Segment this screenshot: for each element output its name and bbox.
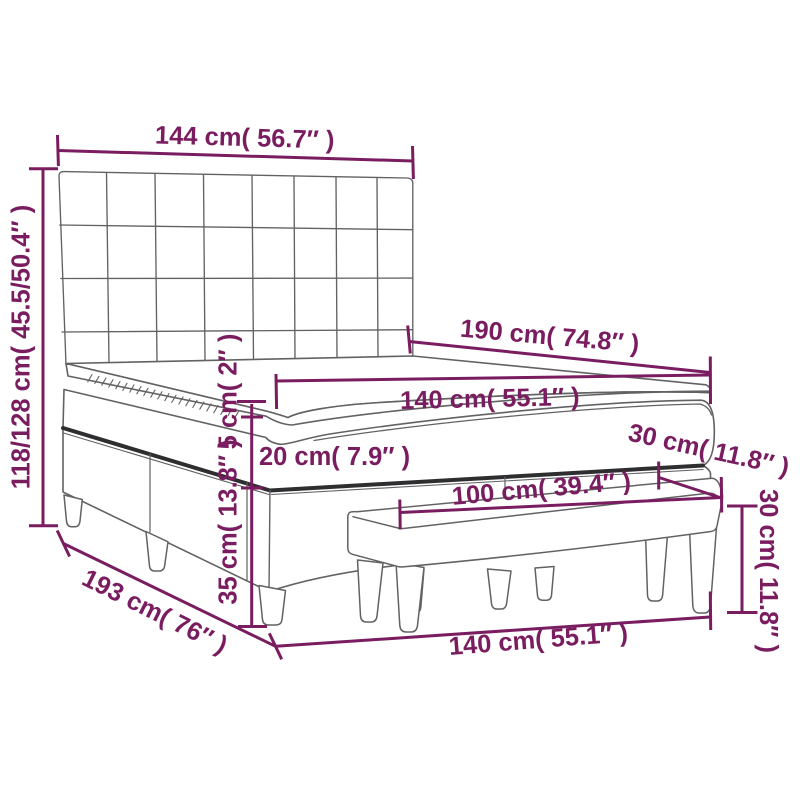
svg-text:140 cm( 55.1″ ): 140 cm( 55.1″ ) bbox=[400, 383, 580, 415]
svg-text:118/128 cm( 45.5/50.4″ ): 118/128 cm( 45.5/50.4″ ) bbox=[8, 205, 36, 489]
svg-text:30 cm( 11.8″ ): 30 cm( 11.8″ ) bbox=[754, 489, 782, 653]
svg-text:5 cm( 2″ ): 5 cm( 2″ ) bbox=[215, 334, 243, 450]
svg-text:35 cm( 13.8″ ): 35 cm( 13.8″ ) bbox=[215, 439, 243, 604]
svg-text:144 cm( 56.7″ ): 144 cm( 56.7″ ) bbox=[155, 122, 335, 155]
svg-text:20 cm( 7.9″ ): 20 cm( 7.9″ ) bbox=[259, 443, 410, 471]
